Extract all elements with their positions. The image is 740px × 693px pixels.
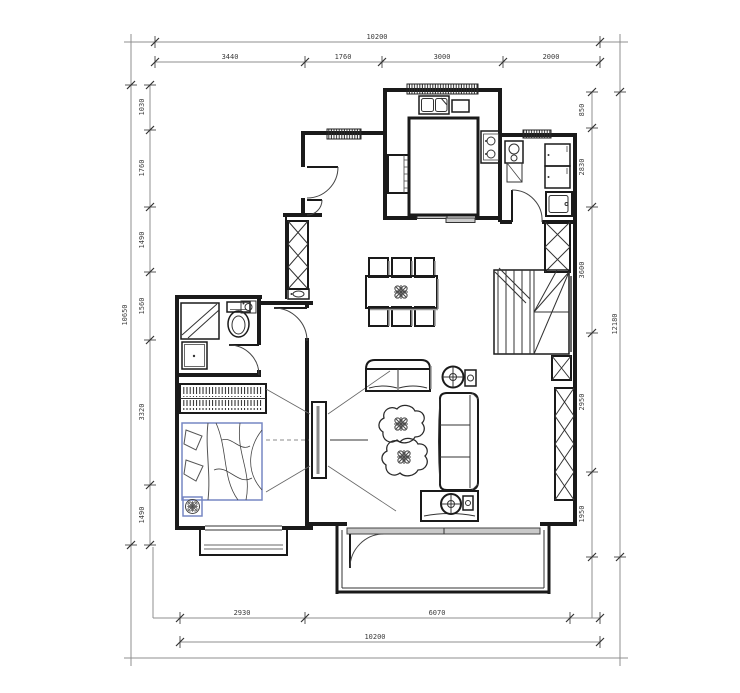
dining-set	[366, 258, 438, 326]
structural-columns	[545, 222, 574, 500]
kitchen-sink	[419, 96, 449, 114]
plant-icon	[394, 417, 408, 431]
entry-window	[327, 129, 361, 139]
dim-bottom-seg-1: 2930	[234, 609, 251, 617]
dim-top-seg-4: 2000	[543, 53, 560, 61]
bedroom-suite-door-swing	[274, 308, 307, 341]
dim-right-seg-2: 2830	[578, 159, 586, 176]
loveseat	[366, 360, 431, 391]
kitchen	[388, 96, 501, 215]
toilet-icon	[227, 302, 250, 337]
balcony-door-swing	[350, 534, 384, 568]
shower-icon	[181, 303, 219, 339]
vanity	[182, 342, 207, 369]
wardrobe	[180, 384, 266, 413]
dim-left-seg-5: 3320	[138, 404, 146, 421]
coffee-table-1	[379, 405, 424, 442]
double-bed	[182, 423, 262, 500]
dim-right-seg-1: 850	[578, 104, 586, 117]
washing-machine-icon	[505, 141, 523, 163]
dimension-frame: 10200 3440 1760 3000 2000 2930 6070 1020…	[121, 33, 628, 666]
dim-top-overall: 10200	[366, 33, 387, 41]
dim-left-seg-6: 1490	[138, 507, 146, 524]
side-table-bottom	[421, 491, 478, 521]
coffee-table-2	[382, 438, 427, 475]
kitchen-window	[407, 84, 478, 94]
balcony	[336, 526, 550, 594]
dim-left-seg-3: 1490	[138, 232, 146, 249]
cutting-board	[452, 100, 469, 112]
staircase	[494, 268, 571, 354]
bay-window	[200, 530, 287, 555]
utility-sink	[546, 192, 572, 216]
plant-icon	[397, 450, 411, 464]
floor-plan-canvas: 10200 3440 1760 3000 2000 2930 6070 1020…	[0, 0, 740, 693]
utility-lower-cabinet	[507, 163, 522, 182]
dim-left-seg-1: 1030	[138, 99, 146, 116]
dim-left-seg-2: 1760	[138, 160, 146, 177]
bathroom	[181, 301, 256, 369]
dim-bottom-overall: 10200	[364, 633, 385, 641]
entry-door-swing-2	[307, 200, 322, 215]
dim-left-overall: 10650	[121, 304, 129, 325]
utility-door-swing	[512, 190, 542, 222]
dim-right-seg-3: 3600	[578, 262, 586, 279]
flower-centerpiece-icon	[394, 285, 408, 299]
dim-right-seg-4: 2950	[578, 394, 586, 411]
kitchen-island	[409, 118, 478, 215]
dim-right-overall: 12180	[611, 313, 619, 334]
dim-left-seg-4: 1560	[138, 298, 146, 315]
dim-top-seg-2: 1760	[335, 53, 352, 61]
dim-right-seg-5: 1950	[578, 506, 586, 523]
refrigerator	[388, 155, 409, 193]
dim-top-seg-3: 3000	[434, 53, 451, 61]
entry-door-swing	[307, 167, 338, 198]
sofa	[439, 393, 479, 490]
bedroom-window	[205, 526, 282, 530]
utility-cabinets	[545, 144, 570, 188]
bedroom	[180, 384, 266, 516]
corner-basin-icon	[241, 301, 256, 313]
living-room	[366, 360, 478, 521]
dim-top-seg-1: 3440	[222, 53, 239, 61]
floor-plan-drawing: 10200 3440 1760 3000 2000 2930 6070 1020…	[0, 0, 740, 693]
shoe-cabinet	[288, 221, 308, 289]
side-table-top	[443, 367, 477, 388]
utility-window	[523, 130, 551, 138]
bathroom-door-swing	[229, 345, 259, 375]
dim-bottom-seg-2: 6070	[429, 609, 446, 617]
hall-basin	[288, 289, 309, 299]
